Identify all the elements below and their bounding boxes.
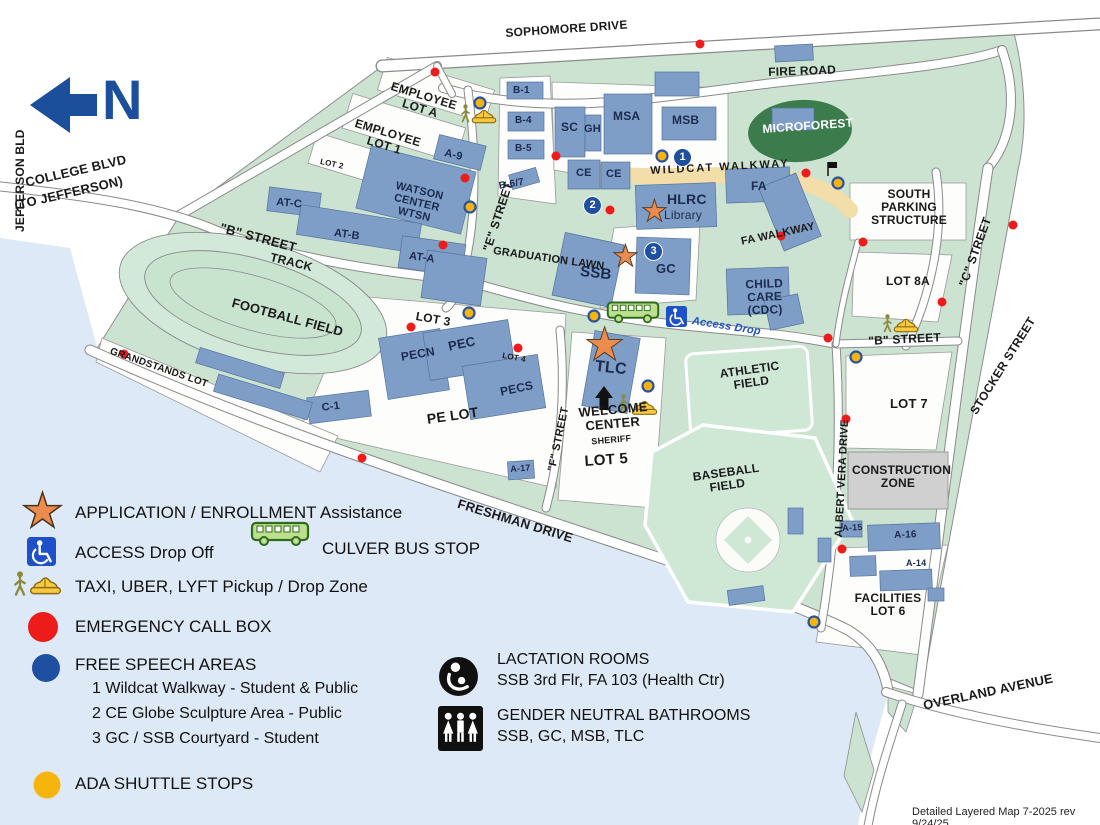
- legend-lactation-sub: SSB 3rd Flr, FA 103 (Health Ctr): [497, 671, 725, 691]
- building-facilities-small-2: [928, 588, 944, 601]
- enrollment-star-hlrc: ★: [641, 197, 668, 227]
- enrollment-star-ssb: ★: [612, 242, 639, 272]
- legend-emergency: EMERGENCY CALL BOX: [75, 616, 272, 637]
- building-label-ce-right: CE: [606, 168, 622, 180]
- label-south-parking-structure: SOUTH PARKING STRUCTURE: [866, 188, 952, 228]
- free-speech-marker-1: 1: [674, 149, 691, 166]
- road-label-fire-road: FIRE ROAD: [768, 64, 836, 80]
- building-unnamed-north: [655, 72, 699, 96]
- legend-ada-icon: [34, 772, 61, 799]
- building-msa: [604, 94, 652, 154]
- building-label-msa: MSA: [613, 110, 640, 123]
- free-speech-marker-2: 2: [584, 197, 601, 214]
- building-label-a14: A-14: [906, 559, 926, 569]
- building-label-a17: A-17: [510, 464, 531, 475]
- building-label-sc: SC: [561, 121, 578, 134]
- legend-lactation-title: LACTATION ROOMS: [497, 650, 649, 670]
- building-facilities-small-1: [850, 556, 877, 577]
- north-label: N: [102, 72, 142, 128]
- building-label-gh: GH: [584, 123, 601, 135]
- lot-label-5: LOT 5: [584, 451, 629, 470]
- lot-label-8a: LOT 8A: [886, 275, 930, 288]
- baseball-dugout-2: [788, 508, 803, 534]
- legend-free-speech-1: 1 Wildcat Walkway - Student & Public: [92, 679, 358, 699]
- building-label-msb: MSB: [672, 114, 699, 127]
- building-label-b4: B-4: [515, 115, 532, 126]
- building-label-hlrc-library: Library: [664, 209, 702, 222]
- building-facilities-small-3: [818, 538, 831, 562]
- building-label-b1: B-1: [513, 85, 530, 96]
- legend-free-speech-3: 3 GC / SSB Courtyard - Student: [92, 729, 319, 749]
- building-unnamed-fire-road: [775, 44, 814, 62]
- free-speech-marker-3: 3: [645, 243, 662, 260]
- building-label-hlrc: HLRC: [667, 192, 707, 207]
- building-label-ce-left: CE: [576, 167, 592, 179]
- legend-emergency-icon: [28, 612, 58, 642]
- enrollment-star-tlc: ★: [584, 321, 625, 367]
- building-label-a16: A-16: [894, 529, 917, 541]
- building-label-c1: C-1: [321, 400, 341, 414]
- campus-map: N JEFFERSON BLD COLLEGE BLVD (TO JEFFERS…: [0, 0, 1100, 825]
- legend-free-speech-icon: [32, 654, 60, 682]
- legend-ada: ADA SHUTTLE STOPS: [75, 773, 253, 794]
- building-label-fa: FA: [751, 180, 767, 193]
- legend-application: APPLICATION / ENROLLMENT Assistance: [75, 502, 402, 523]
- legend-gnb-sub: SSB, GC, MSB, TLC: [497, 727, 644, 747]
- building-label-at-c: AT-C: [276, 196, 303, 211]
- legend-star-icon: ★: [21, 488, 64, 536]
- building-label-ssb: SSB: [579, 264, 612, 284]
- legend-gnb-title: GENDER NEUTRAL BATHROOMS: [497, 706, 750, 726]
- building-a14: [880, 569, 933, 591]
- north-arrow-icon: [30, 77, 97, 133]
- lot-label-7: LOT 7: [890, 397, 928, 411]
- legend-access: ACCESS Drop Off: [75, 542, 214, 563]
- access-drop-icon: [666, 306, 687, 327]
- building-label-child-care: CHILD CARE (CDC): [728, 276, 801, 318]
- label-construction-zone: CONSTRUCTION ZONE: [852, 464, 944, 490]
- building-label-b5: B-5: [515, 143, 532, 154]
- map-revision-note: Detailed Layered Map 7-2025 rev 9/24/25: [912, 806, 1100, 825]
- legend-taxi: TAXI, UBER, LYFT Pickup / Drop Zone: [75, 576, 368, 597]
- legend-access-icon: [27, 537, 56, 566]
- legend-culver-bus: CULVER BUS STOP: [322, 538, 480, 559]
- legend-lactation-icon: [439, 657, 478, 696]
- lot-label-facilities-6: FACILITIES LOT 6: [850, 592, 926, 618]
- legend-gender-neutral-icon: [438, 706, 483, 751]
- building-label-gc: GC: [656, 262, 676, 276]
- legend-free-speech-title: FREE SPEECH AREAS: [75, 654, 256, 675]
- building-label-a15: A-15: [842, 523, 863, 534]
- label-welcome-center: WELCOME CENTER: [578, 400, 646, 434]
- legend-free-speech-2: 2 CE Globe Sculpture Area - Public: [92, 704, 342, 724]
